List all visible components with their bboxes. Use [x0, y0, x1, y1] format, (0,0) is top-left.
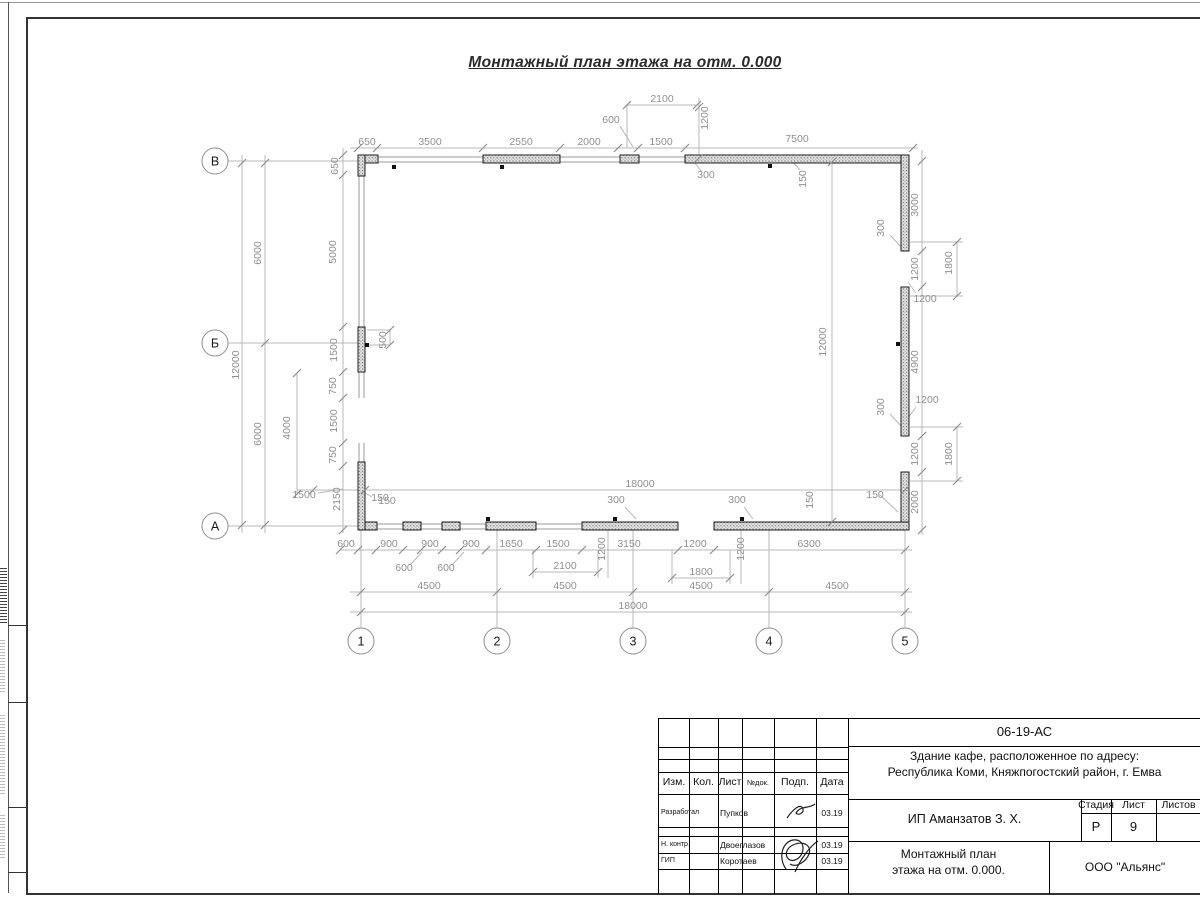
dimension-label: 900 [380, 538, 398, 550]
dimension-label: 600 [337, 538, 355, 550]
title-block-line [1111, 799, 1112, 841]
title-block-line [718, 719, 719, 894]
dimension-line [890, 414, 901, 426]
row-date: 03.19 [816, 806, 848, 820]
dimension-label: 1650 [499, 538, 523, 550]
col-header-ndok: №док. [742, 772, 774, 794]
anchor-plate [365, 343, 369, 347]
dimension-label: 7500 [785, 133, 809, 145]
dimension-label: 150 [797, 170, 809, 188]
title-block-line [659, 836, 848, 837]
title-block-line [659, 772, 848, 773]
wall-panel [582, 522, 678, 530]
axis-label: Б [211, 337, 219, 351]
dimension-label: 2150 [331, 487, 343, 511]
dimension-label: 6000 [252, 422, 264, 446]
title-block-line [1081, 813, 1200, 814]
dimension-label: 2100 [650, 93, 674, 105]
axis-label: 3 [630, 635, 637, 649]
dimension-label: 1200 [915, 394, 939, 406]
dimension-label: 3150 [617, 538, 641, 550]
dimension-label: 18000 [618, 600, 647, 612]
project-name-line2: Республика Коми, Княжпогостский район, г… [848, 764, 1200, 780]
dimension-label: 1200 [735, 537, 747, 561]
dimension-label: 1200 [909, 257, 921, 281]
wall-panel [358, 462, 365, 530]
dimension-label: 2550 [509, 136, 533, 148]
title-block-line [659, 869, 848, 870]
dimension-label: 900 [421, 538, 439, 550]
doc-number: 06-19-АС [848, 719, 1200, 746]
dimension-label: 4500 [689, 580, 713, 592]
dimension-label: 300 [875, 398, 887, 416]
wall-panel [685, 155, 909, 163]
dimension-label: 600 [602, 114, 620, 126]
dimension-label: 750 [327, 446, 339, 464]
dimension-label: 3500 [418, 136, 442, 148]
organization-name: ООО "Альянс" [1049, 841, 1200, 894]
dimension-label: 500 [377, 331, 389, 349]
wall-panel [403, 522, 421, 530]
wall-panel [620, 155, 639, 163]
anchor-plate [613, 517, 617, 521]
col-header-podp: Подп. [774, 772, 816, 794]
dimension-label: 1500 [292, 489, 316, 501]
title-block-line [659, 747, 848, 748]
dimension-label: 1200 [699, 106, 711, 130]
dimension-label: 4500 [553, 580, 577, 592]
title-block-line [848, 841, 1200, 842]
wall-panel [901, 287, 909, 436]
title-block-line [1081, 799, 1082, 841]
dimension-label: 600 [437, 562, 455, 574]
sheet-title-line2: этажа на отм. 0.000. [848, 862, 1049, 878]
dimension-label: 300 [607, 494, 625, 506]
dimension-label: 750 [327, 377, 339, 395]
dimension-label: 4900 [909, 350, 921, 374]
dimension-label: 600 [395, 562, 413, 574]
anchor-plate [500, 165, 504, 169]
row-name: Коротаев [720, 855, 790, 868]
wall-panel [358, 155, 365, 176]
title-block-line [1049, 841, 1050, 894]
wall-panel [486, 522, 536, 530]
project-name-line1: Здание кафе, расположенное по адресу: [848, 748, 1200, 764]
dimension-label: 650 [329, 157, 341, 175]
dimension-label: 300 [697, 169, 715, 181]
dimension-label: 2000 [577, 136, 601, 148]
wall-panel [901, 472, 909, 530]
dimension-label: 12000 [230, 350, 242, 379]
title-block-line [659, 827, 848, 828]
col-header-izm: Изм. [659, 772, 689, 794]
dimension-label: 4000 [281, 416, 293, 440]
title-block-line [848, 799, 1200, 800]
anchor-plate [768, 164, 772, 168]
dimension-label: 150 [866, 489, 884, 501]
col-header-data: Дата [816, 772, 848, 794]
axis-label: 4 [766, 635, 773, 649]
anchor-plate [486, 517, 490, 521]
dimension-label: 1500 [546, 538, 570, 550]
row-date: 03.19 [816, 855, 848, 868]
stage-label: Стадия [1081, 799, 1111, 813]
dimension-line [744, 507, 753, 519]
dimension-label: 1800 [689, 566, 713, 578]
drawing-sheet: { "page": { "drawing_title": "Монтажный … [0, 0, 1200, 900]
anchor-plate [392, 165, 396, 169]
dimension-label: 2100 [553, 560, 577, 572]
title-block-line [774, 719, 775, 894]
wall-panel [901, 155, 909, 251]
dimension-label: 1500 [649, 136, 673, 148]
title-block-line [659, 853, 848, 854]
dimension-line [890, 235, 901, 247]
title-block-line [816, 719, 817, 894]
dimension-label: 6300 [797, 538, 821, 550]
dimension-label: 1500 [328, 338, 340, 362]
col-header-kol: Кол. [689, 772, 718, 794]
axis-label: 2 [494, 635, 501, 649]
row-name: Двоеглазов [720, 838, 790, 852]
title-block-line [689, 719, 690, 894]
axis-label: 5 [902, 635, 909, 649]
title-block: 06-19-АС Здание кафе, расположенное по а… [658, 718, 1200, 894]
dimension-label: 150 [804, 491, 816, 509]
dimension-label: 900 [462, 538, 480, 550]
dimension-label: 300 [875, 219, 887, 237]
dimension-label: 300 [728, 494, 746, 506]
dimension-label: 1200 [913, 293, 937, 305]
title-block-line [742, 719, 743, 894]
dimension-label: 3000 [909, 193, 921, 217]
axis-label: 1 [358, 635, 365, 649]
title-block-line [659, 759, 848, 760]
wall-panel [483, 155, 560, 163]
dimension-line [625, 507, 636, 519]
dimension-label: 5000 [327, 240, 339, 264]
dimension-label: 4500 [825, 580, 849, 592]
dimension-label: 1200 [596, 537, 608, 561]
axis-label: А [211, 520, 220, 534]
title-block-line [848, 746, 1200, 747]
anchor-plate [740, 517, 744, 521]
sheets-label: Листов [1156, 799, 1200, 813]
dimension-label: 1800 [943, 442, 955, 466]
dimension-label: 18000 [625, 478, 654, 490]
stage-value: Р [1081, 813, 1111, 841]
dimension-label: 1200 [909, 442, 921, 466]
dimension-label: 1200 [683, 538, 707, 550]
title-block-line [659, 794, 848, 795]
dimension-label: 4500 [417, 580, 441, 592]
col-header-list: Лист [718, 772, 742, 794]
axis-label: В [211, 155, 219, 169]
dimension-label: 1800 [943, 251, 955, 275]
dimension-label: 12000 [817, 327, 829, 356]
client-name: ИП Аманзатов З. Х. [848, 799, 1081, 841]
dimension-label: 1500 [328, 409, 340, 433]
anchor-plate [896, 342, 900, 346]
dimension-label: 650 [358, 136, 376, 148]
title-block-line [1156, 799, 1157, 841]
dimension-label: 150 [371, 492, 389, 504]
sheet-title-line1: Монтажный план [848, 846, 1049, 862]
wall-panel [358, 327, 365, 372]
wall-panel [714, 522, 909, 530]
dimension-label: 6000 [252, 241, 264, 265]
sheet-value: 9 [1111, 813, 1156, 841]
row-date: 03.19 [816, 838, 848, 852]
dimension-label: 2000 [909, 490, 921, 514]
row-name: Пупков [720, 806, 790, 820]
sheet-label: Лист [1111, 799, 1156, 813]
wall-panel [442, 522, 460, 530]
